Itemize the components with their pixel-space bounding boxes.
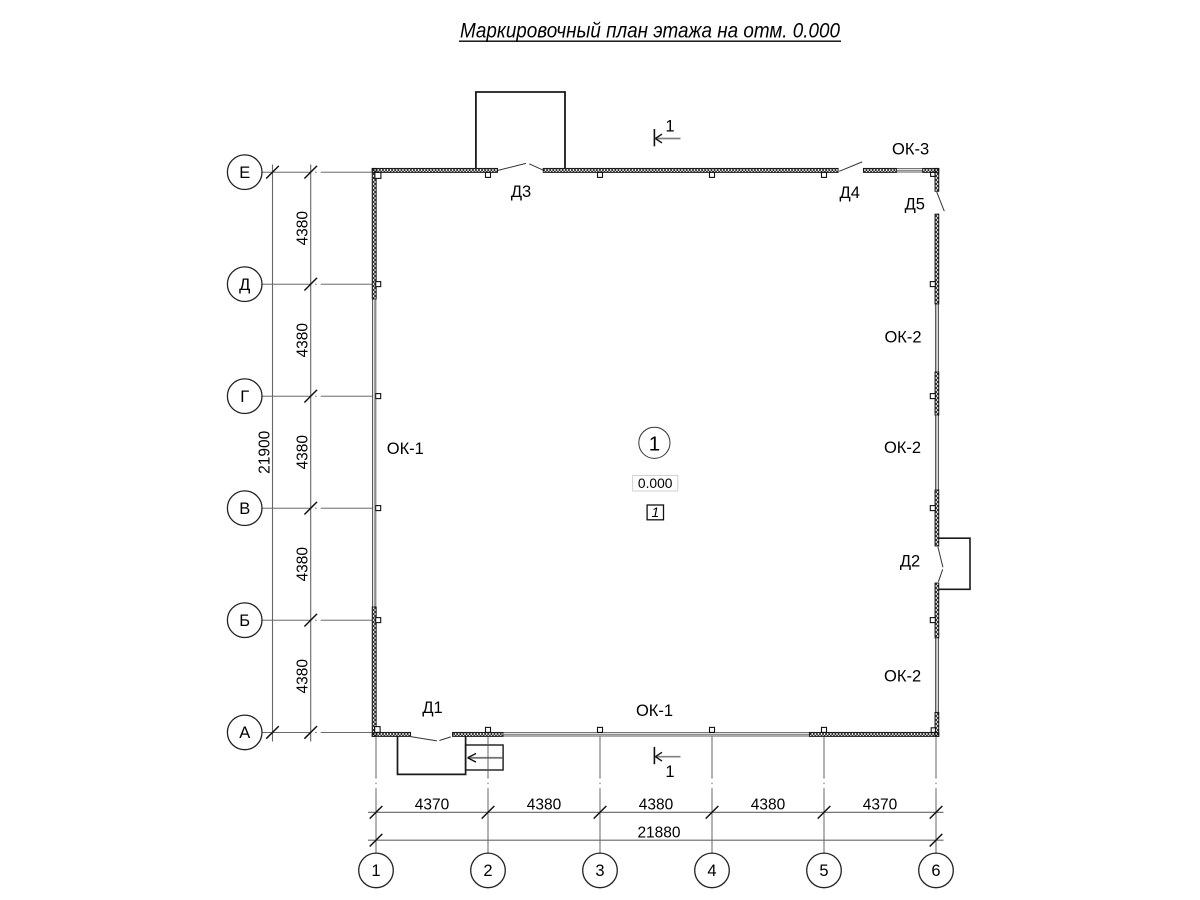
svg-text:3: 3 bbox=[595, 862, 604, 880]
svg-text:4380: 4380 bbox=[527, 797, 562, 814]
svg-text:4380: 4380 bbox=[751, 797, 786, 814]
svg-text:ОК-1: ОК-1 bbox=[387, 440, 424, 458]
svg-text:21880: 21880 bbox=[637, 825, 680, 842]
svg-text:ОК-2: ОК-2 bbox=[884, 328, 921, 346]
svg-text:А: А bbox=[239, 724, 250, 742]
svg-text:5: 5 bbox=[819, 862, 828, 880]
svg-text:ОК-1: ОК-1 bbox=[636, 702, 673, 720]
svg-text:Д3: Д3 bbox=[511, 183, 531, 201]
svg-text:Д2: Д2 bbox=[900, 552, 920, 570]
svg-text:1: 1 bbox=[371, 862, 380, 880]
svg-text:4380: 4380 bbox=[295, 659, 312, 694]
svg-text:4380: 4380 bbox=[295, 211, 312, 246]
svg-text:Д5: Д5 bbox=[905, 196, 925, 214]
svg-text:Д: Д bbox=[239, 276, 250, 294]
svg-text:4380: 4380 bbox=[295, 547, 312, 582]
svg-text:0.000: 0.000 bbox=[638, 476, 673, 491]
svg-text:4370: 4370 bbox=[863, 797, 898, 814]
svg-text:2: 2 bbox=[483, 862, 492, 880]
svg-text:4370: 4370 bbox=[415, 797, 450, 814]
svg-text:4: 4 bbox=[707, 862, 716, 880]
svg-text:ОК-2: ОК-2 bbox=[884, 668, 921, 686]
svg-text:Маркировочный план этажа на от: Маркировочный план этажа на отм. 0.000 bbox=[460, 18, 840, 42]
svg-text:1: 1 bbox=[665, 763, 674, 781]
svg-text:1: 1 bbox=[649, 432, 660, 455]
svg-text:Е: Е bbox=[239, 164, 250, 182]
svg-text:4380: 4380 bbox=[639, 797, 674, 814]
svg-text:4380: 4380 bbox=[295, 323, 312, 358]
svg-text:Б: Б bbox=[239, 612, 250, 630]
svg-text:Д1: Д1 bbox=[422, 699, 442, 717]
svg-text:Г: Г bbox=[240, 388, 249, 406]
svg-text:1: 1 bbox=[651, 505, 659, 520]
svg-text:6: 6 bbox=[931, 862, 940, 880]
svg-text:21900: 21900 bbox=[257, 430, 274, 473]
svg-text:Д4: Д4 bbox=[840, 184, 860, 202]
svg-text:1: 1 bbox=[665, 118, 674, 136]
svg-text:ОК-2: ОК-2 bbox=[884, 439, 921, 457]
svg-text:4380: 4380 bbox=[295, 435, 312, 470]
svg-text:ОК-3: ОК-3 bbox=[892, 140, 929, 158]
svg-text:В: В bbox=[239, 500, 250, 518]
